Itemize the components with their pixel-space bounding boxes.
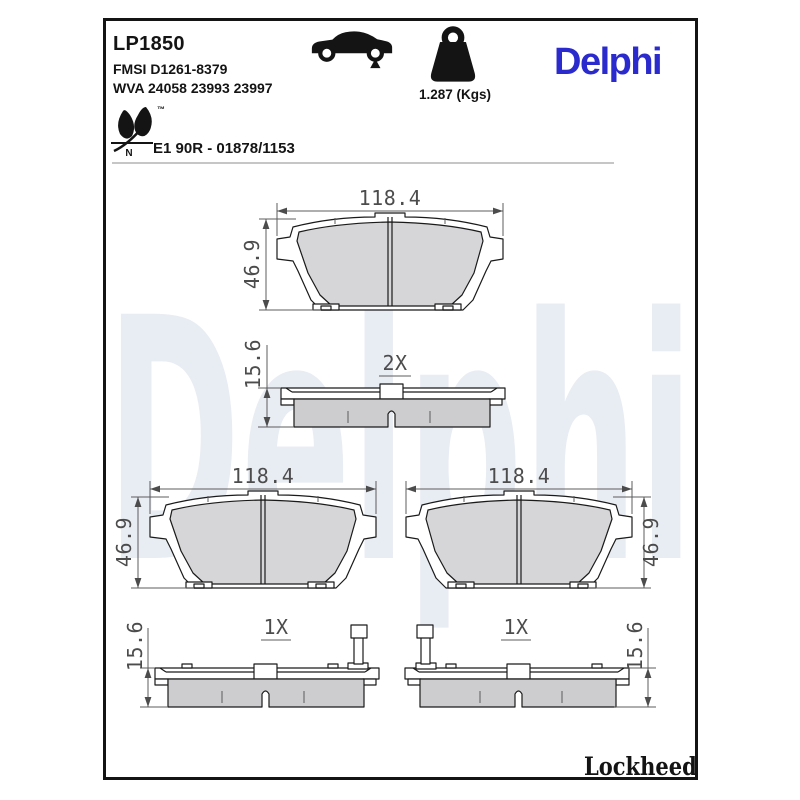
weight-icon — [424, 24, 482, 86]
header-divider — [112, 162, 614, 164]
quantity-label-bottom-left: 1X — [261, 615, 291, 640]
profile-view-bottom-right — [405, 664, 629, 707]
svg-text:46.9: 46.9 — [639, 517, 663, 567]
delphi-logo: Delphi — [554, 41, 661, 84]
svg-text:15.6: 15.6 — [241, 339, 265, 389]
weight-value: 1.287 (Kgs) — [394, 87, 516, 102]
document-frame: Delphi 118.4 46.9 15.6 2X — [103, 18, 698, 780]
pad-face-view-bottom-right — [406, 491, 632, 588]
svg-text:2X: 2X — [382, 351, 407, 375]
svg-text:118.4: 118.4 — [488, 464, 551, 488]
fmsi-code: FMSI D1261-8379 — [113, 61, 227, 77]
datasheet-page: Delphi 118.4 46.9 15.6 2X — [0, 0, 800, 800]
trademark-symbol: ™ — [157, 105, 165, 114]
quantity-label-bottom-right: 1X — [501, 615, 531, 640]
registered-mark: ® — [697, 755, 698, 769]
leaf-icon: N — [111, 105, 159, 159]
pad-face-view-top — [277, 213, 503, 310]
eco-letter: N — [125, 148, 132, 159]
technical-drawing: Delphi 118.4 46.9 15.6 2X — [106, 21, 695, 776]
svg-text:1X: 1X — [503, 615, 528, 639]
lockheed-logo-text: Lockheed — [584, 752, 697, 780]
approval-code: E1 90R - 01878/1153 — [153, 140, 295, 157]
pad-face-view-bottom-left — [150, 491, 376, 588]
quantity-label-middle: 2X — [379, 351, 411, 376]
svg-text:118.4: 118.4 — [359, 186, 422, 210]
svg-text:46.9: 46.9 — [112, 517, 136, 567]
svg-text:46.9: 46.9 — [240, 239, 264, 289]
wva-code: WVA 24058 23993 23997 — [113, 80, 273, 96]
part-number: LP1850 — [113, 33, 185, 56]
svg-text:15.6: 15.6 — [623, 621, 647, 671]
svg-text:1X: 1X — [263, 615, 288, 639]
profile-view-bottom-left — [155, 664, 379, 707]
car-silhouette-icon — [310, 27, 394, 71]
svg-text:118.4: 118.4 — [232, 464, 295, 488]
svg-text:15.6: 15.6 — [123, 621, 147, 671]
lockheed-logo: Lockheed® — [584, 752, 698, 780]
